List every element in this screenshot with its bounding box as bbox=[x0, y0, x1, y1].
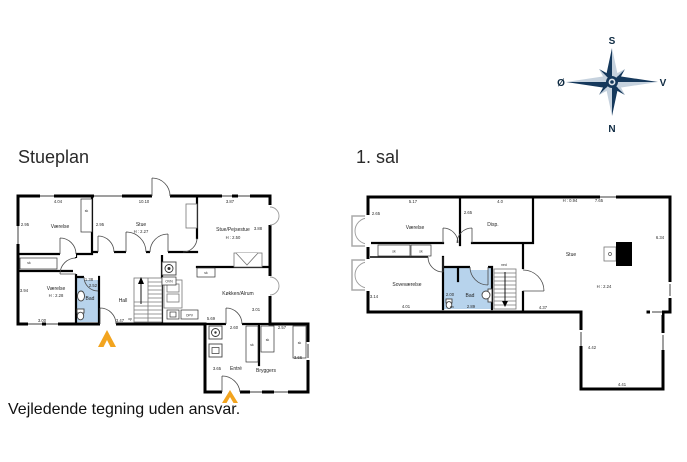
compass-west-label: V bbox=[660, 78, 667, 89]
dim-label: 2.52 bbox=[89, 283, 98, 288]
room-label-vaerelse1: Værelse bbox=[51, 224, 70, 230]
first-floor-plan: 5.17 2.65 Værelse 4.0 2.65 Disp. sk sk S… bbox=[352, 194, 673, 389]
dim-label: 4.41 bbox=[618, 382, 627, 387]
room-label-hall: Hall bbox=[119, 298, 128, 304]
dim-label: 7.65 bbox=[595, 198, 604, 203]
disclaimer-text: Vejledende tegning uden ansvar. bbox=[8, 401, 240, 418]
first-windows bbox=[581, 197, 670, 350]
dim-label: 3.94 bbox=[20, 288, 29, 293]
room-label-stue: Stue bbox=[136, 222, 147, 228]
closet-label: sk bbox=[392, 250, 396, 254]
height-label: H : 2.28 bbox=[49, 293, 64, 298]
chimney-box bbox=[186, 204, 197, 228]
dim-label: 2.65 bbox=[372, 211, 381, 216]
dim-label: 2.60 bbox=[230, 325, 239, 330]
compass-east-label: Ø bbox=[557, 78, 565, 89]
closet-label: sk bbox=[266, 338, 270, 342]
room-label-bad: Bad bbox=[86, 296, 95, 302]
room-label-bryggers: Bryggers bbox=[256, 368, 277, 374]
ground-floor-plan: 4.04 2.95 Værelse sk 2.95 Stue H : 2.27 … bbox=[15, 178, 311, 403]
closet-label: sk bbox=[250, 343, 254, 347]
dim-label: 10.10 bbox=[139, 199, 150, 204]
laundry-appliances-icon bbox=[209, 326, 222, 357]
dim-label: 3.66 bbox=[294, 355, 303, 360]
dim-label: 2.00 bbox=[446, 292, 455, 297]
first-staircase bbox=[494, 269, 516, 309]
dim-label: 4.0 bbox=[497, 199, 503, 204]
dim-label: 3.00 bbox=[38, 318, 47, 323]
dim-label: 5.17 bbox=[409, 199, 418, 204]
wood-stove-icon bbox=[604, 242, 632, 266]
height-label: H : 0.94 bbox=[563, 198, 578, 203]
oven-label: OVN bbox=[165, 280, 173, 284]
dim-label: 2.95 bbox=[96, 222, 105, 227]
compass-south-label: S bbox=[609, 36, 616, 47]
ground-staircase bbox=[134, 277, 162, 322]
floorplan-drawing: Stueplan 1. sal Vejledende tegning uden … bbox=[0, 0, 687, 457]
dim-label: 3.14 bbox=[370, 294, 379, 299]
floorplan-page: Stueplan 1. sal Vejledende tegning uden … bbox=[0, 0, 687, 457]
stairs-down-label: ned bbox=[501, 263, 507, 267]
room-label-disp: Disp. bbox=[487, 222, 498, 228]
dim-label: 3.88 bbox=[254, 226, 263, 231]
ground-sink-icon bbox=[78, 291, 85, 301]
closet-label: sk bbox=[27, 261, 31, 265]
dim-label: 2.89 bbox=[467, 304, 476, 309]
height-label: H : 2.24 bbox=[597, 284, 612, 289]
height-label: H : 2.50 bbox=[226, 235, 241, 240]
dim-label: 4.01 bbox=[402, 304, 411, 309]
dim-label: 2.57 bbox=[278, 325, 287, 330]
dim-label: 3.01 bbox=[252, 307, 261, 312]
ground-toilet-icon bbox=[77, 309, 84, 320]
entrance-arrow-icon bbox=[98, 330, 116, 347]
first-closets bbox=[378, 245, 431, 256]
dim-label: 6.34 bbox=[656, 235, 665, 240]
room-label-sovevaerelse: Soveværelse bbox=[392, 282, 421, 288]
dishwasher-icon bbox=[167, 310, 198, 319]
room-label-vaerelse2: Værelse bbox=[47, 286, 66, 292]
room-label-bad: Bad bbox=[466, 293, 475, 299]
wc-label: wc bbox=[450, 305, 454, 309]
fireplace-icon bbox=[234, 253, 262, 267]
ground-floor-title: Stueplan bbox=[18, 147, 89, 167]
compass-rose-icon: S V N Ø bbox=[557, 36, 667, 135]
dim-label: 3.65 bbox=[213, 366, 222, 371]
room-label-entre: Entré bbox=[230, 366, 242, 372]
closet-label: sk bbox=[204, 271, 208, 275]
room-label-vaerelse: Værelse bbox=[406, 225, 425, 231]
room-label-pejsestue: Stue/Pejsestue bbox=[216, 227, 250, 233]
dishwasher-label: OPV bbox=[186, 314, 194, 318]
dim-label: 4.37 bbox=[539, 305, 548, 310]
first-openings bbox=[365, 194, 673, 350]
compass-north-label: N bbox=[608, 124, 615, 135]
height-label: H : 2.27 bbox=[134, 229, 149, 234]
first-labels: 5.17 2.65 Værelse 4.0 2.65 Disp. sk sk S… bbox=[370, 198, 665, 387]
dim-label: 2.65 bbox=[464, 210, 473, 215]
closet-label: sk bbox=[85, 209, 89, 213]
dim-label: 3.87 bbox=[226, 199, 235, 204]
dim-label: 4.04 bbox=[54, 199, 63, 204]
stairs-up-label: op bbox=[128, 317, 132, 321]
room-label-koekken: Køkken/Alrum bbox=[222, 291, 253, 297]
closet-label: sk bbox=[298, 341, 302, 345]
room-label-stue: Stue bbox=[566, 252, 577, 258]
dim-label: 5.69 bbox=[207, 316, 216, 321]
first-floor-title: 1. sal bbox=[356, 147, 399, 167]
dim-label: 1.38 bbox=[85, 277, 94, 282]
closet-label: sk bbox=[419, 250, 423, 254]
dim-label: 3.47 bbox=[116, 318, 125, 323]
dim-label: 4.42 bbox=[588, 345, 597, 350]
dim-label: 2.95 bbox=[21, 222, 30, 227]
